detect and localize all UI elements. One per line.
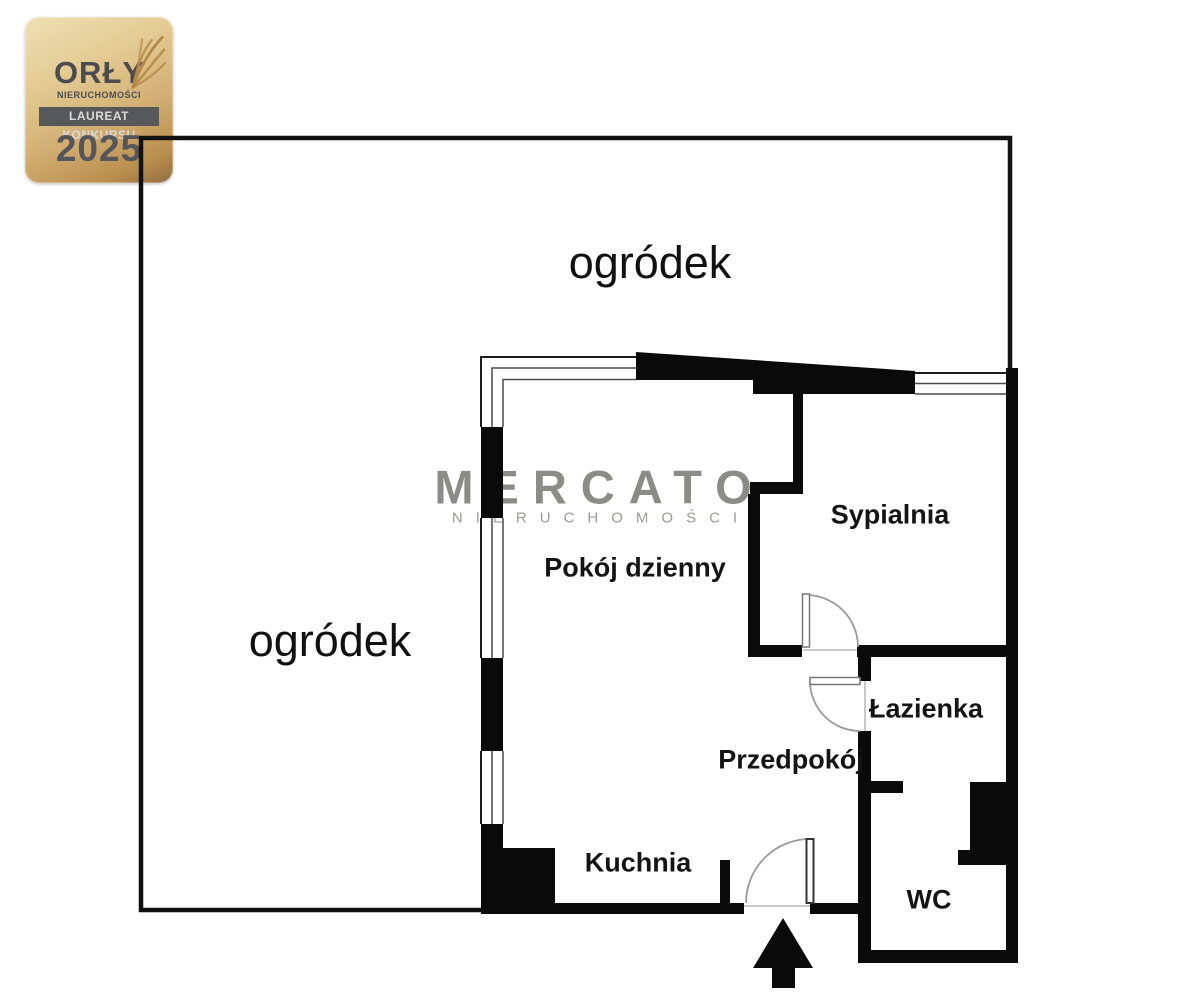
garden-boundary bbox=[141, 138, 1010, 910]
door-bathroom bbox=[810, 678, 865, 732]
ventilation-shaft bbox=[958, 782, 1007, 865]
entrance-arrow bbox=[753, 918, 813, 988]
floor-plan-drawing bbox=[0, 0, 1200, 998]
door-entrance bbox=[744, 839, 814, 906]
exterior-walls bbox=[481, 352, 1018, 963]
door-bedroom bbox=[803, 594, 859, 650]
floor-plan-page: ORŁY NIERUCHOMOŚCI LAUREAT KONKURSU 2025… bbox=[0, 0, 1200, 998]
windows bbox=[481, 357, 1006, 824]
